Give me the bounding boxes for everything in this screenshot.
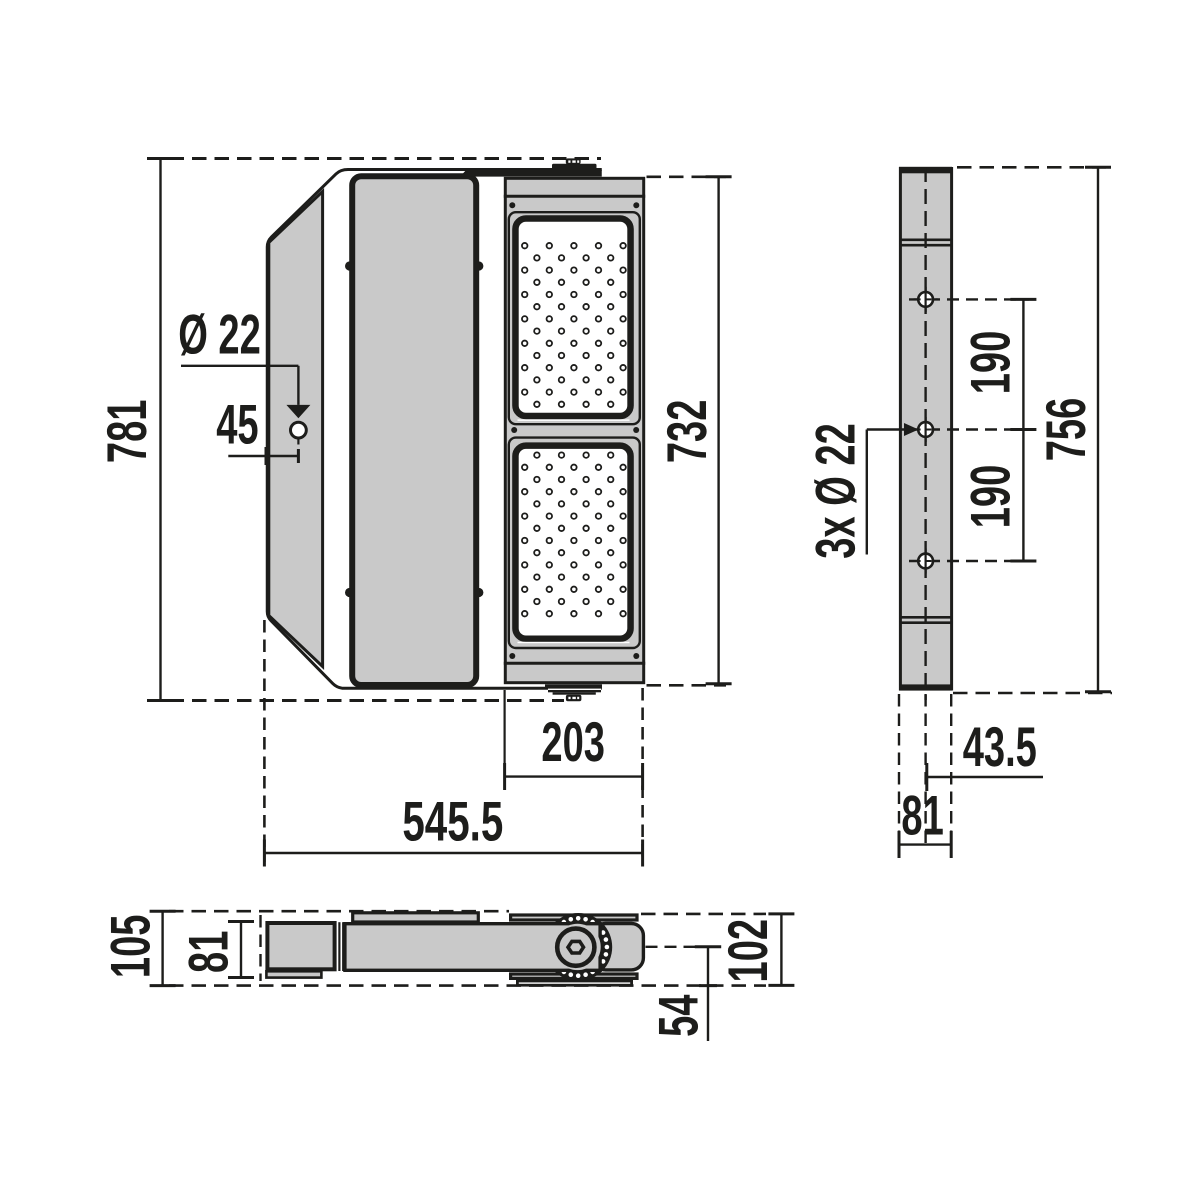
svg-text:Ø 22: Ø 22 [178,302,261,365]
svg-text:203: 203 [541,710,605,773]
svg-text:190: 190 [959,331,1022,395]
svg-text:190: 190 [959,465,1022,529]
svg-text:756: 756 [1034,398,1097,462]
svg-text:102: 102 [716,919,779,983]
svg-text:781: 781 [95,400,158,464]
svg-text:105: 105 [98,915,161,979]
svg-text:545.5: 545.5 [402,789,503,852]
svg-text:3x Ø 22: 3x Ø 22 [803,423,866,559]
svg-text:81: 81 [901,784,943,847]
svg-text:81: 81 [177,931,240,973]
svg-text:45: 45 [216,392,258,455]
svg-text:43.5: 43.5 [963,715,1037,778]
svg-text:732: 732 [655,400,718,464]
svg-text:54: 54 [647,995,710,1037]
